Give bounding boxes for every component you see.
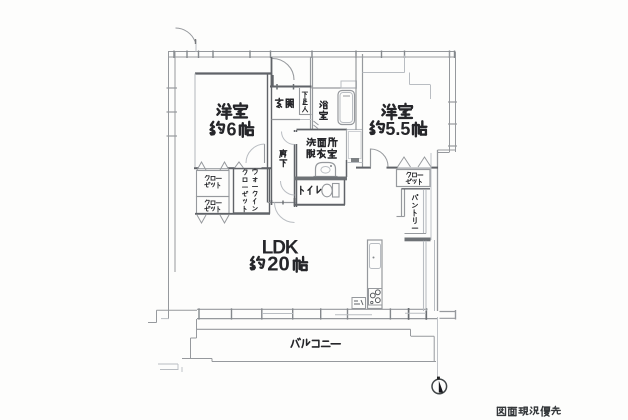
- svg-text:20: 20: [267, 253, 289, 275]
- svg-text:5.5: 5.5: [385, 119, 410, 139]
- svg-text:6: 6: [227, 120, 237, 140]
